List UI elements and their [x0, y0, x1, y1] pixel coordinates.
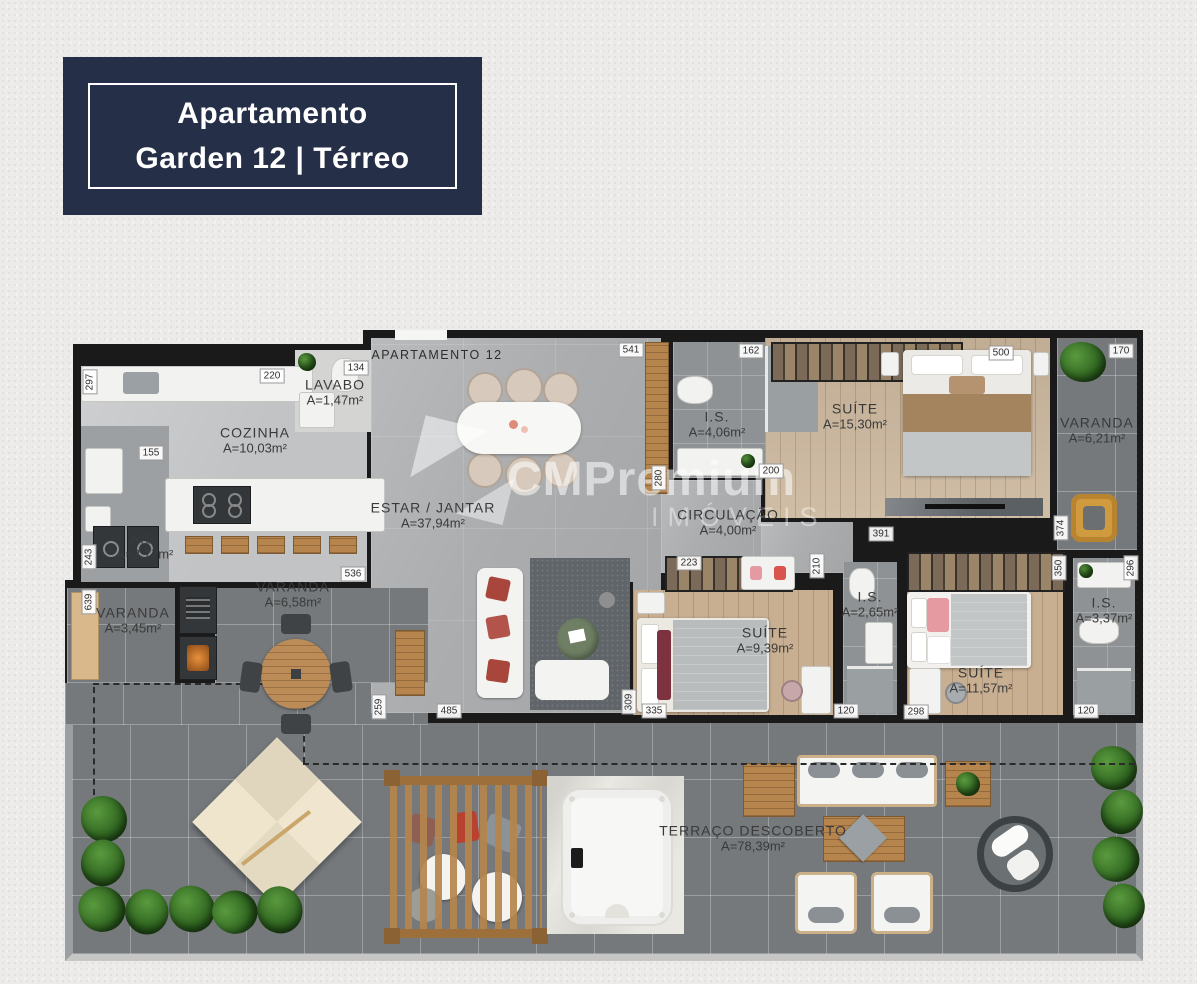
hanging-egg-chair: [977, 816, 1053, 892]
varanda658-chair: [329, 661, 353, 693]
room-label: SUÍTEA=11,57m²: [950, 665, 1013, 696]
room-label: A.S.A=3,77m²: [117, 531, 174, 562]
terrace-armchair: [871, 872, 933, 934]
dimension-label: 134: [344, 361, 369, 376]
varanda658-chair: [239, 661, 263, 693]
terrace-side-table: [743, 763, 795, 817]
room-label: COZINHAA=10,03m²: [220, 425, 290, 456]
dimension-label: 335: [642, 704, 667, 719]
dimension-label: 536: [341, 567, 366, 582]
room-label: I.S.A=4,06m²: [689, 409, 746, 440]
dimension-label: 485: [437, 704, 462, 719]
terrace-armchair: [795, 872, 857, 934]
varanda658-table: [261, 639, 331, 709]
dimension-label: 155: [139, 446, 164, 461]
spa-tub: [561, 788, 673, 926]
dimension-label: 309: [622, 690, 637, 715]
terrace-plant-table: [945, 761, 991, 807]
dimension-label: 297: [83, 370, 98, 395]
title-badge-border: Apartamento Garden 12 | Térreo: [88, 83, 457, 189]
dimension-label: 223: [677, 556, 702, 571]
room-label: SUÍTEA=15,30m²: [823, 401, 887, 432]
page: { "title_badge": { "line1": "Apartamento…: [0, 0, 1197, 984]
dimension-label: 500: [989, 346, 1014, 361]
room-label: VARANDAA=6,58m²: [256, 579, 330, 610]
dimension-label: 280: [652, 466, 667, 491]
room-label: VARANDAA=3,45m²: [96, 605, 170, 636]
dimension-label: 296: [1124, 556, 1139, 581]
dimension-label: 391: [869, 527, 894, 542]
room-label: VARANDAA=6,21m²: [1060, 415, 1134, 446]
shrub: [81, 796, 127, 842]
dimension-label: 170: [1109, 344, 1134, 359]
dimension-label: 200: [759, 464, 784, 479]
room-label: ESTAR / JANTARA=37,94m²: [371, 500, 496, 531]
room-label: I.S.A=3,37m²: [1076, 595, 1133, 626]
boundary-dashed-main: [303, 763, 1135, 765]
dimension-label: 220: [260, 369, 285, 384]
varanda658-chair: [281, 614, 311, 634]
dimension-label: 350: [1052, 556, 1067, 581]
boundary-dashed-left: [93, 687, 95, 795]
floor-plan: CMPremium IMÓVEIS APARTAMENTO 12 LAVABOA…: [65, 330, 1143, 968]
room-label: I.S.A=2,65m²: [842, 589, 899, 620]
room-label: SUÍTEA=9,39m²: [737, 625, 794, 656]
unit-label: APARTAMENTO 12: [371, 348, 502, 362]
dimension-label: 374: [1054, 516, 1069, 541]
dimension-label: 120: [1074, 704, 1099, 719]
dimension-label: 259: [372, 695, 387, 720]
room-label: TERRAÇO DESCOBERTOA=78,39m²: [659, 823, 847, 854]
spa-deck: [547, 776, 684, 934]
dimension-label: 541: [619, 343, 644, 358]
room-label: LAVABOA=1,47m²: [305, 377, 365, 408]
dimension-label: 210: [810, 554, 825, 579]
dimension-label: 243: [82, 545, 97, 570]
title-line-2: Garden 12 | Térreo: [135, 136, 409, 181]
title-line-1: Apartamento: [177, 91, 368, 136]
dimension-label: 298: [904, 705, 929, 720]
dimension-label: 639: [82, 590, 97, 615]
climbing-plant: [1091, 746, 1137, 790]
varanda658-chair: [281, 714, 311, 734]
room-label: CIRCULAÇÃOA=4,00m²: [677, 507, 779, 538]
dimension-label: 120: [834, 704, 859, 719]
title-badge: Apartamento Garden 12 | Térreo: [63, 57, 482, 215]
dimension-label: 162: [739, 344, 764, 359]
pergola: [390, 776, 542, 938]
